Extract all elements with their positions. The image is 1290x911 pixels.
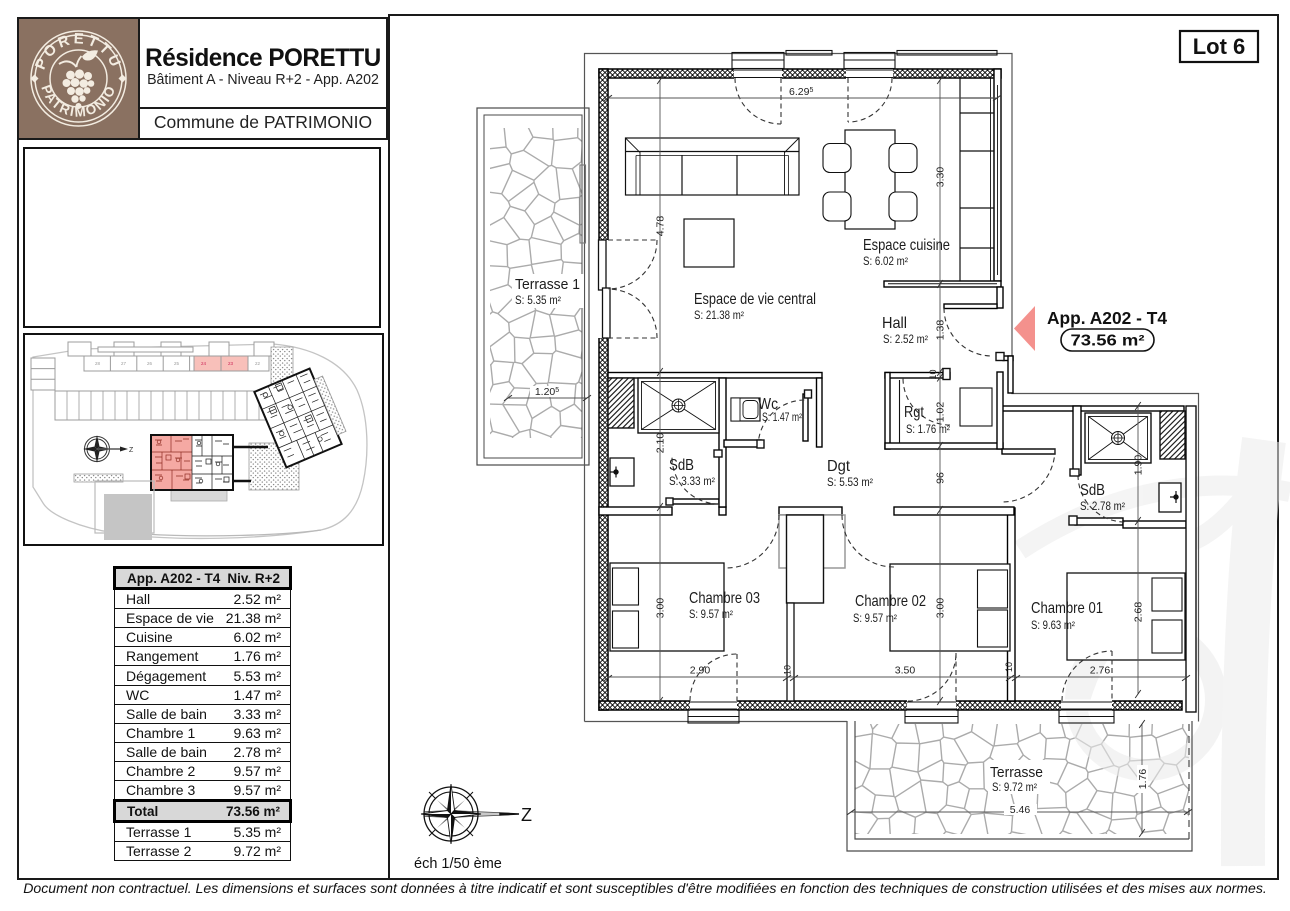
svg-text:S: 9.72 m²: S: 9.72 m² <box>992 782 1037 794</box>
svg-text:S: 9.57 m²: S: 9.57 m² <box>689 609 733 621</box>
svg-text:3.00: 3.00 <box>935 598 947 619</box>
svg-text:Rgt: Rgt <box>904 404 924 421</box>
svg-text:3.50: 3.50 <box>895 665 916 677</box>
svg-text:1.90: 1.90 <box>1133 455 1145 476</box>
svg-text:96: 96 <box>935 472 947 484</box>
svg-text:S: 3.33 m²: S: 3.33 m² <box>669 476 715 488</box>
svg-text:1.02: 1.02 <box>935 402 947 423</box>
svg-text:S: 1.47 m²: S: 1.47 m² <box>762 412 802 424</box>
svg-text:10: 10 <box>928 369 938 379</box>
svg-text:2.10: 2.10 <box>655 433 667 454</box>
svg-text:Hall: Hall <box>882 315 907 332</box>
svg-text:S: 9.63 m²: S: 9.63 m² <box>1031 620 1075 632</box>
svg-text:Lot 6: Lot 6 <box>1193 34 1246 59</box>
svg-text:éch 1/50 ème: éch 1/50 ème <box>414 856 502 872</box>
svg-text:2.90: 2.90 <box>690 665 711 677</box>
svg-text:S: 9.57 m²: S: 9.57 m² <box>853 613 897 625</box>
svg-text:2.76: 2.76 <box>1090 665 1111 677</box>
svg-text:Chambre 03: Chambre 03 <box>689 590 760 607</box>
svg-text:Chambre 02: Chambre 02 <box>855 593 926 610</box>
svg-text:3.30: 3.30 <box>935 167 947 188</box>
svg-text:73.56 m²: 73.56 m² <box>1071 333 1145 350</box>
svg-text:SdB: SdB <box>1080 482 1105 499</box>
svg-text:S: 1.76 m²: S: 1.76 m² <box>906 424 950 436</box>
svg-text:10: 10 <box>783 665 793 675</box>
svg-text:Wc: Wc <box>758 396 778 413</box>
svg-text:S: 5.53 m²: S: 5.53 m² <box>827 477 873 489</box>
svg-text:Espace de vie central: Espace de vie central <box>694 291 816 308</box>
svg-text:6.295: 6.295 <box>789 86 813 98</box>
svg-text:SdB: SdB <box>669 457 694 474</box>
svg-text:Chambre 01: Chambre 01 <box>1031 600 1103 617</box>
svg-text:S: 2.78 m²: S: 2.78 m² <box>1080 501 1125 513</box>
svg-text:Z: Z <box>521 805 532 825</box>
svg-text:Terrasse 1: Terrasse 1 <box>515 276 580 293</box>
svg-text:5.46: 5.46 <box>1010 804 1031 816</box>
svg-text:10: 10 <box>1004 662 1014 672</box>
svg-text:4.78: 4.78 <box>655 216 667 237</box>
svg-text:1.76: 1.76 <box>1137 769 1149 790</box>
svg-text:3.00: 3.00 <box>655 598 667 619</box>
svg-text:Dgt: Dgt <box>827 458 851 475</box>
svg-text:App. A202 - T4: App. A202 - T4 <box>1047 308 1167 328</box>
svg-text:2.68: 2.68 <box>1133 602 1145 623</box>
svg-text:S: 6.02 m²: S: 6.02 m² <box>863 256 908 268</box>
svg-text:1.38: 1.38 <box>935 320 947 341</box>
svg-text:S: 5.35 m²: S: 5.35 m² <box>515 295 561 307</box>
svg-text:Espace cuisine: Espace cuisine <box>863 237 950 254</box>
svg-text:S: 21.38 m²: S: 21.38 m² <box>694 310 744 322</box>
svg-text:Terrasse: Terrasse <box>990 764 1043 781</box>
svg-text:S: 2.52 m²: S: 2.52 m² <box>883 334 928 346</box>
